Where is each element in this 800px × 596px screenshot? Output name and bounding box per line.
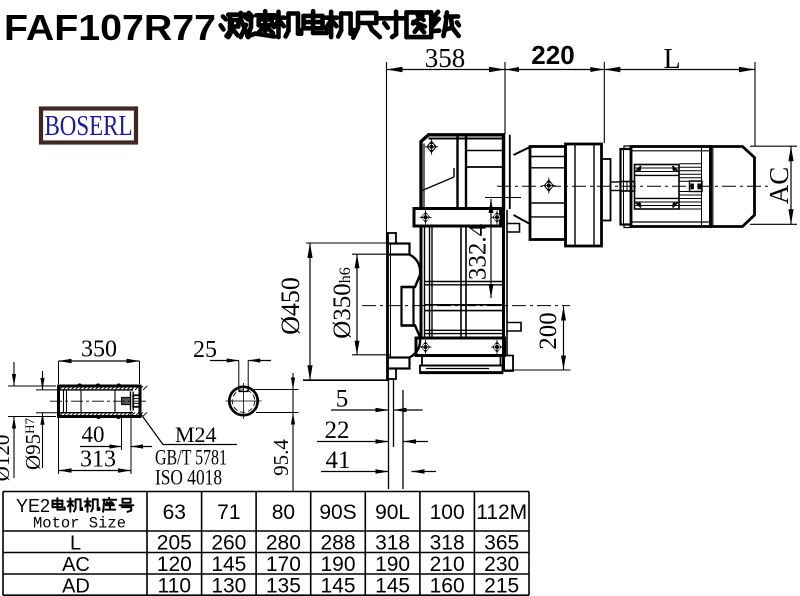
svg-text:L: L: [663, 44, 680, 75]
svg-text:Ø450: Ø450: [276, 277, 305, 335]
svg-text:112M: 112M: [476, 501, 527, 524]
svg-text:318: 318: [430, 532, 465, 555]
svg-text:40: 40: [82, 422, 105, 447]
svg-text:BOSERL: BOSERL: [45, 111, 133, 142]
svg-text:145: 145: [320, 575, 355, 596]
svg-text:313: 313: [80, 447, 116, 473]
svg-text:AC: AC: [764, 167, 794, 205]
svg-text:365: 365: [484, 532, 519, 555]
svg-text:288: 288: [320, 532, 355, 555]
svg-text:AD: AD: [62, 576, 90, 596]
svg-text:120: 120: [157, 553, 192, 576]
svg-text:L: L: [70, 533, 81, 555]
svg-text:80: 80: [272, 501, 295, 524]
svg-text:71: 71: [217, 501, 240, 524]
svg-text:95.4: 95.4: [269, 439, 293, 476]
svg-text:25: 25: [193, 337, 217, 363]
svg-text:135: 135: [266, 575, 301, 596]
svg-text:41: 41: [326, 447, 351, 474]
svg-text:5: 5: [336, 386, 349, 413]
svg-text:190: 190: [375, 553, 410, 576]
svg-text:63: 63: [163, 501, 186, 524]
svg-text:Ø120: Ø120: [0, 435, 14, 482]
svg-text:110: 110: [158, 575, 191, 596]
svg-text:90L: 90L: [375, 501, 410, 524]
svg-text:358: 358: [425, 43, 466, 73]
svg-text:230: 230: [484, 553, 519, 576]
svg-text:145: 145: [375, 575, 410, 596]
svg-text:220: 220: [531, 40, 574, 70]
svg-text:M24: M24: [175, 422, 217, 447]
svg-text:200: 200: [535, 312, 562, 350]
svg-text:350: 350: [81, 337, 117, 363]
svg-text:260: 260: [211, 532, 246, 555]
svg-text:205: 205: [157, 532, 192, 555]
svg-text:318: 318: [375, 532, 410, 555]
svg-text:AC: AC: [62, 554, 90, 576]
svg-text:ISO 4018: ISO 4018: [155, 465, 222, 490]
svg-text:170: 170: [266, 553, 301, 576]
svg-text:22: 22: [325, 417, 350, 444]
svg-text:100: 100: [430, 501, 465, 524]
svg-text:215: 215: [484, 575, 519, 596]
svg-text:190: 190: [320, 553, 355, 576]
svg-text:FAF107R77: FAF107R77: [4, 7, 216, 48]
svg-text:130: 130: [211, 575, 246, 596]
svg-text:Motor Size: Motor Size: [33, 515, 126, 533]
svg-text:145: 145: [211, 553, 246, 576]
svg-text:332.4: 332.4: [465, 223, 492, 280]
svg-text:YE2: YE2: [16, 496, 50, 516]
svg-text:90S: 90S: [319, 501, 356, 524]
svg-text:280: 280: [266, 532, 301, 555]
svg-text:210: 210: [430, 553, 465, 576]
svg-text:160: 160: [430, 575, 465, 596]
